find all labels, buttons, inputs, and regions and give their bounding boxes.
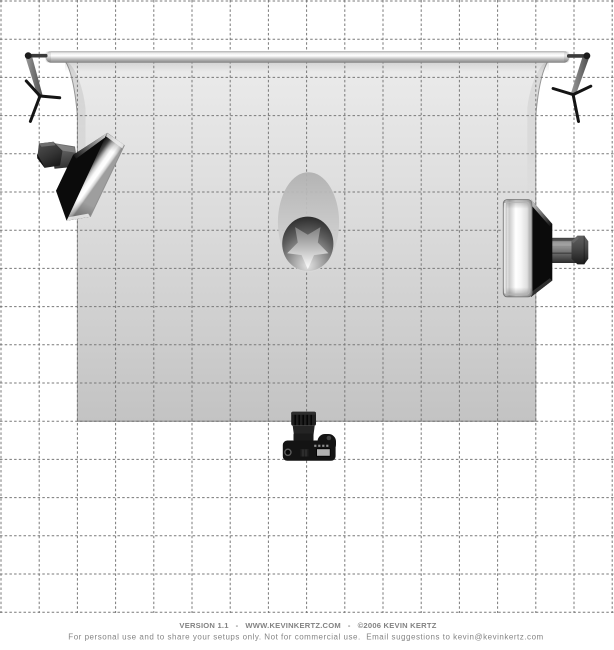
svg-text:For personal use and to share: For personal use and to share your setup… xyxy=(68,633,543,642)
svg-text:VERSION 1.1 - WWW.KEVINKER: VERSION 1.1 - WWW.KEVINKERTZ.COM - ©2006… xyxy=(179,621,436,630)
